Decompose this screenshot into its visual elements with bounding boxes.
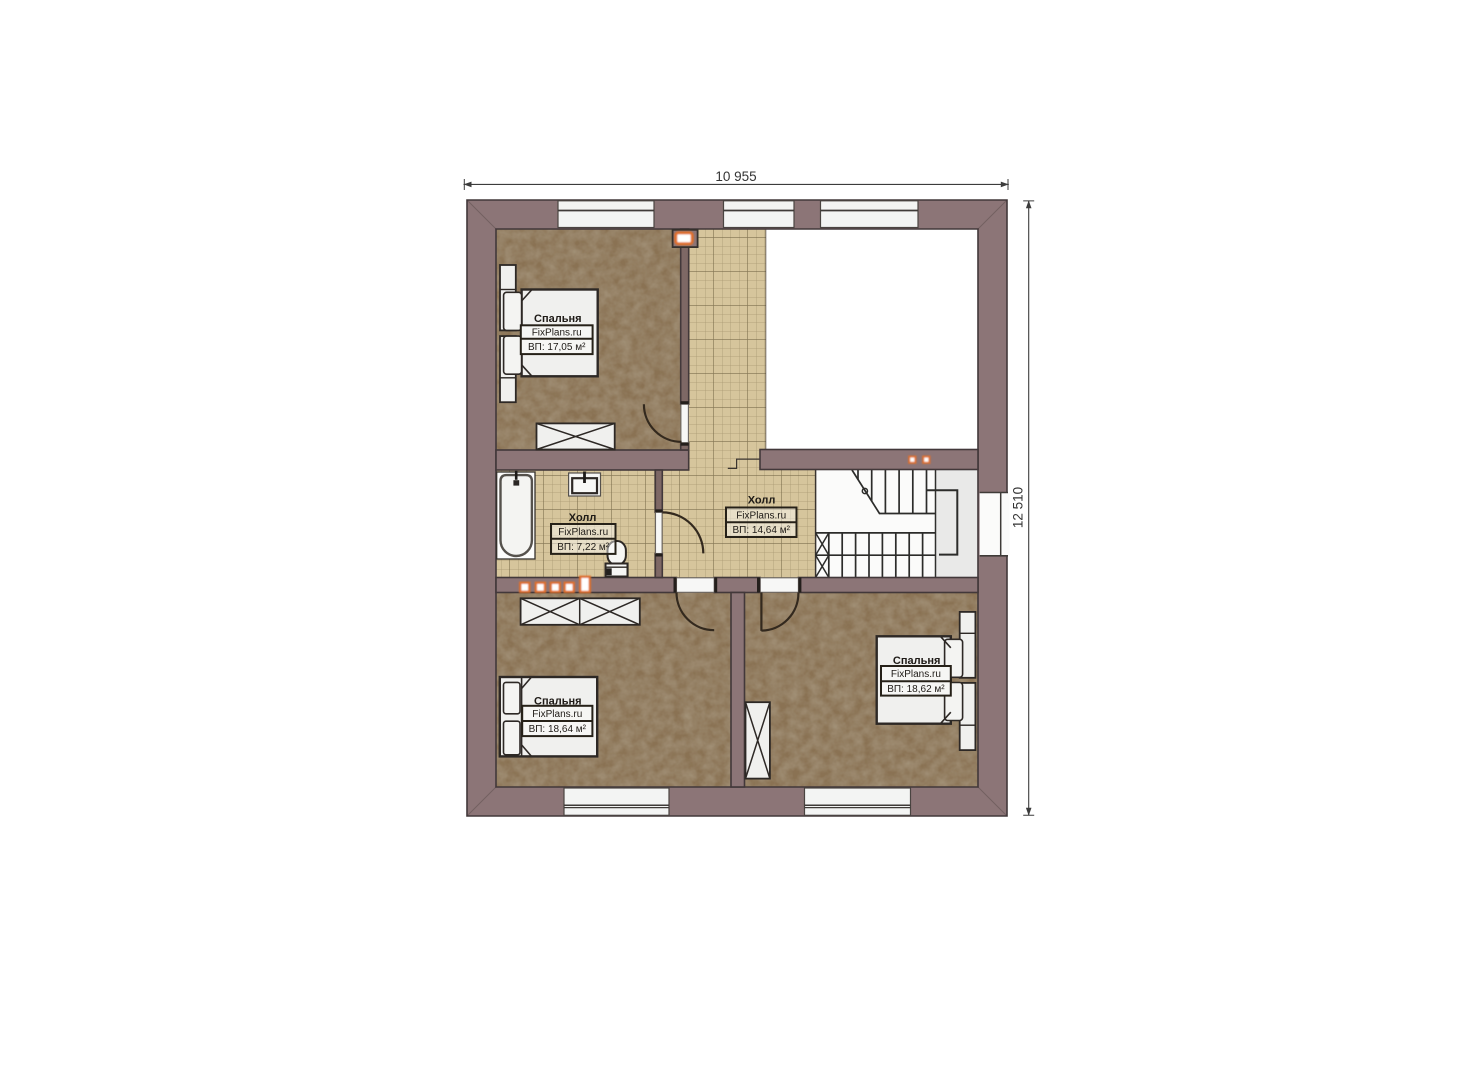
svg-text:FixPlans.ru: FixPlans.ru	[891, 669, 941, 680]
svg-text:ВП: 7,22 м²: ВП: 7,22 м²	[557, 542, 610, 553]
svg-text:ВП: 14,64 м²: ВП: 14,64 м²	[732, 525, 790, 536]
svg-text:ВП: 18,62 м²: ВП: 18,62 м²	[887, 684, 945, 695]
svg-text:FixPlans.ru: FixPlans.ru	[532, 709, 582, 720]
svg-text:ВП: 18,64 м²: ВП: 18,64 м²	[529, 724, 587, 735]
svg-text:FixPlans.ru: FixPlans.ru	[558, 527, 608, 538]
svg-text:FixPlans.ru: FixPlans.ru	[736, 511, 786, 522]
svg-text:10 955: 10 955	[715, 169, 756, 184]
svg-text:ВП: 17,05 м²: ВП: 17,05 м²	[528, 342, 586, 353]
svg-text:12 510: 12 510	[1011, 487, 1026, 528]
svg-text:FixPlans.ru: FixPlans.ru	[532, 328, 582, 339]
svg-text:Холл: Холл	[748, 495, 776, 507]
svg-text:Холл: Холл	[569, 512, 597, 524]
svg-text:Спальня: Спальня	[534, 313, 582, 325]
